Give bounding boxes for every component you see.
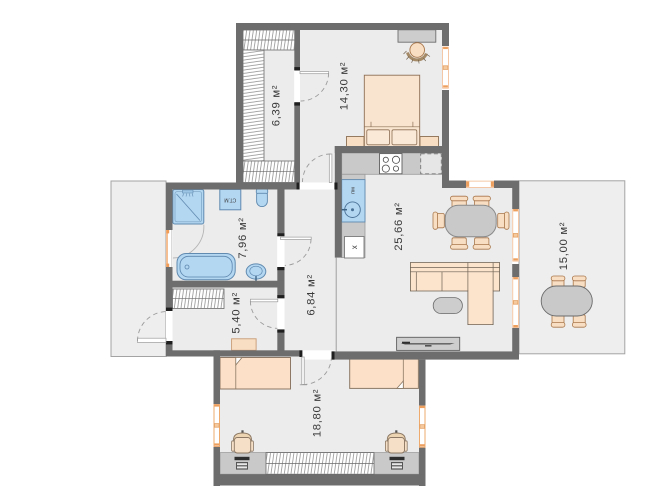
svg-text:7,96 м²: 7,96 м² — [237, 217, 249, 259]
svg-text:14,30 м²: 14,30 м² — [339, 62, 351, 111]
svg-text:пм: пм — [351, 187, 357, 194]
svg-text:25,66 м²: 25,66 м² — [393, 202, 405, 251]
svg-text:18,80 м²: 18,80 м² — [312, 389, 324, 438]
svg-text:СТ.М: СТ.М — [224, 197, 236, 203]
svg-text:x: x — [350, 245, 359, 249]
svg-text:15,00 м²: 15,00 м² — [558, 222, 570, 271]
svg-text:6,39 м²: 6,39 м² — [271, 85, 283, 127]
svg-text:5,40 м²: 5,40 м² — [230, 292, 242, 334]
svg-text:6,84 м²: 6,84 м² — [306, 274, 318, 316]
